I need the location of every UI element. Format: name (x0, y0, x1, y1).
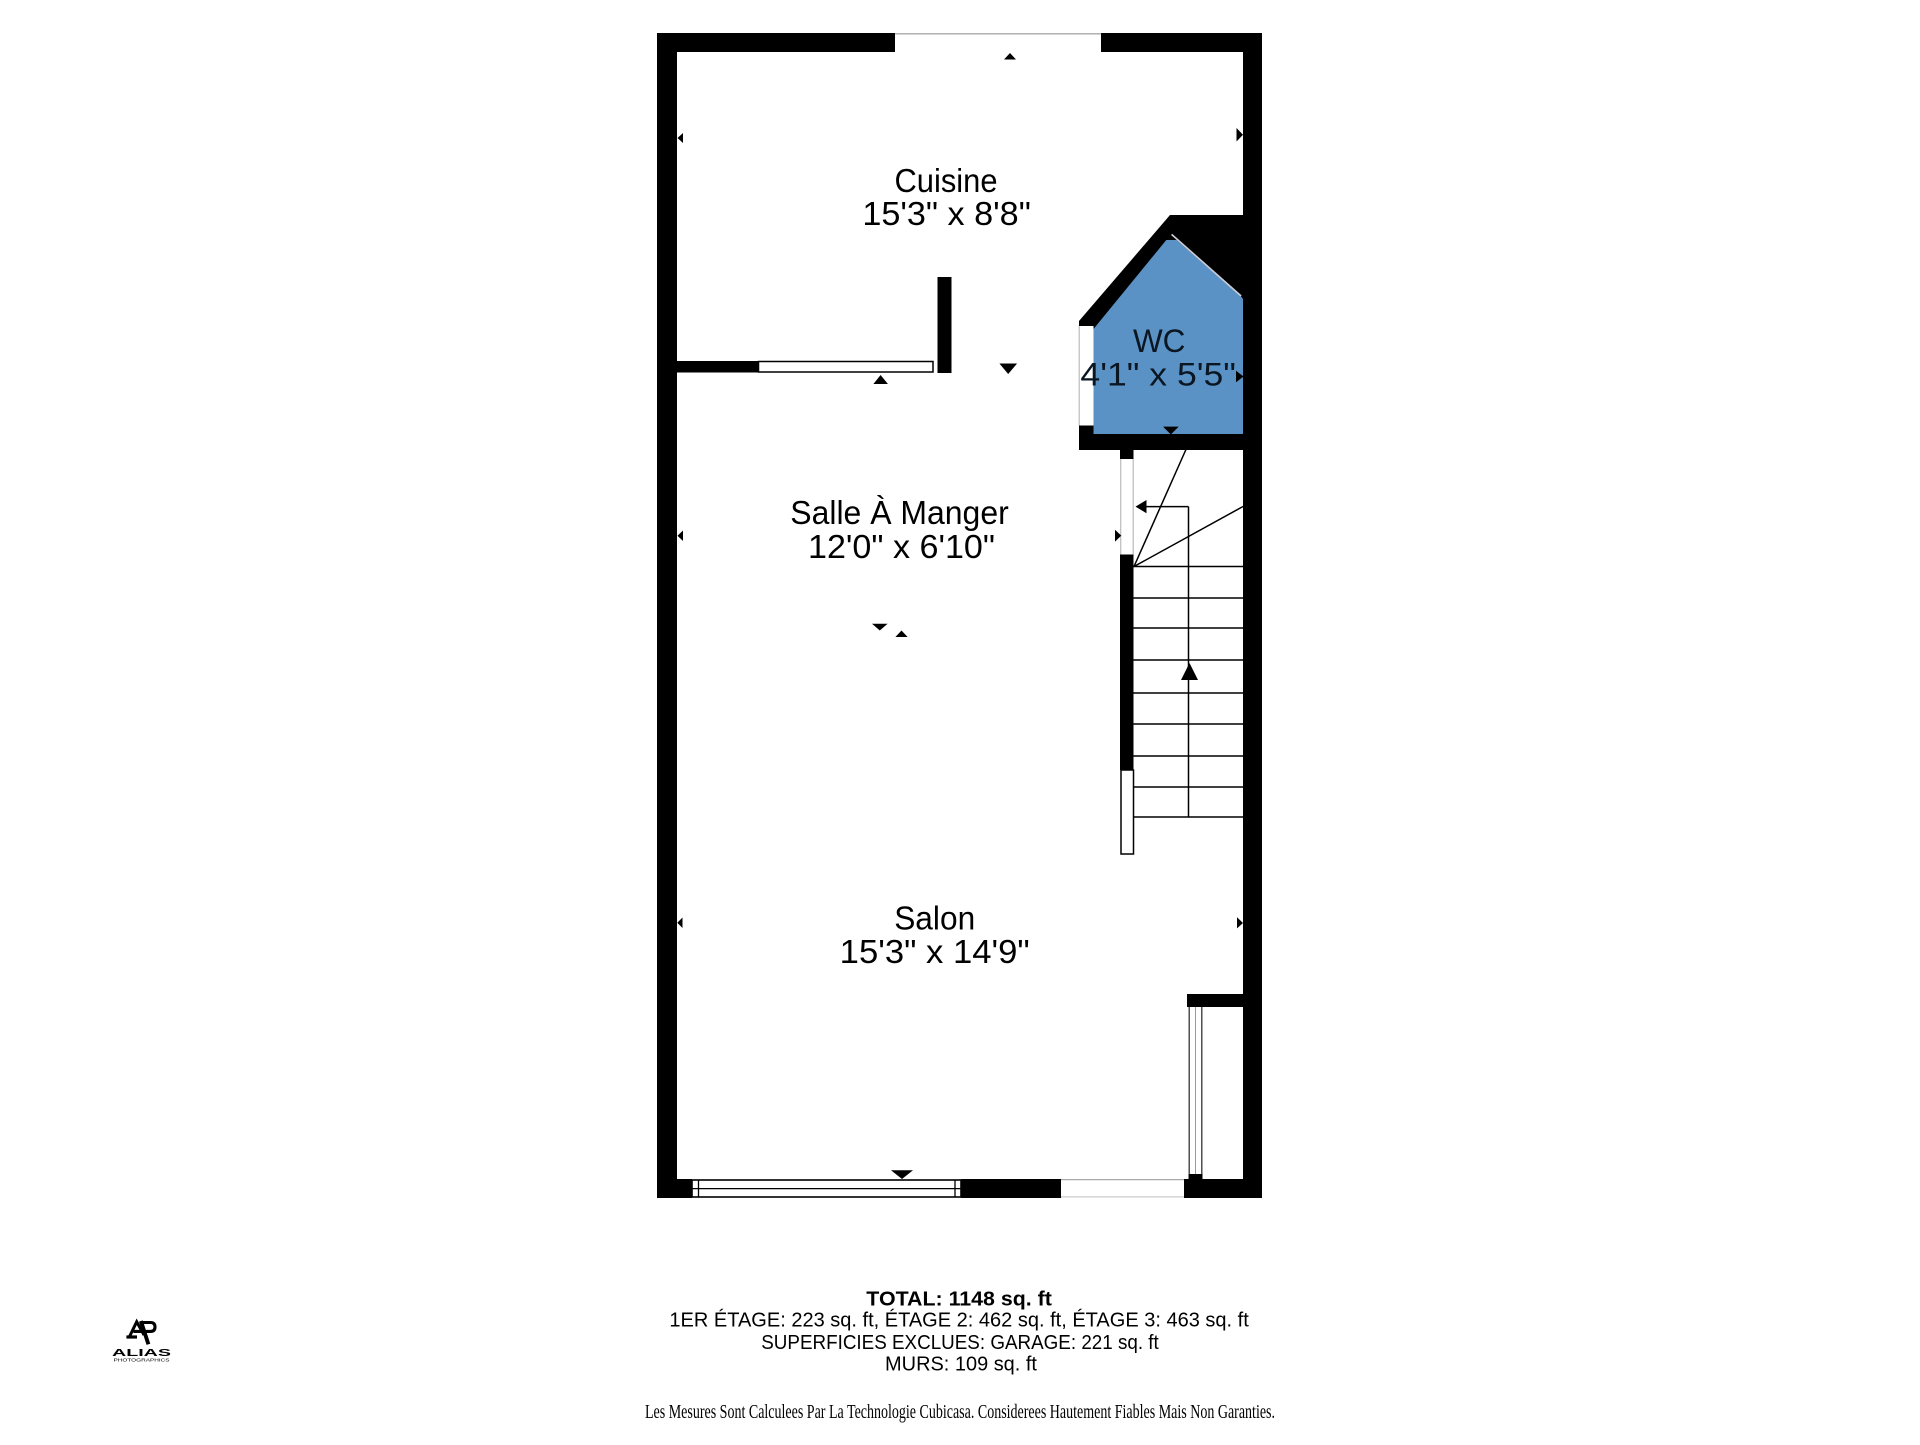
svg-text:WC: WC (1133, 323, 1186, 359)
svg-text:TOTAL: 1148 sq. ft: TOTAL: 1148 sq. ft (866, 1288, 1052, 1311)
svg-text:12'0" x 6'10": 12'0" x 6'10" (808, 528, 995, 565)
svg-text:Les Mesures Sont Calculees Par: Les Mesures Sont Calculees Par La Techno… (645, 1402, 1275, 1423)
svg-text:15'3" x 8'8": 15'3" x 8'8" (862, 195, 1031, 232)
svg-text:SUPERFICIES EXCLUES: GARAGE: 2: SUPERFICIES EXCLUES: GARAGE: 221 sq. ft (761, 1331, 1159, 1354)
svg-text:15'3" x 14'9": 15'3" x 14'9" (840, 933, 1030, 970)
svg-text:Salon: Salon (894, 899, 975, 936)
svg-text:Salle À Manger: Salle À Manger (790, 494, 1009, 531)
svg-text:MURS: 109 sq. ft: MURS: 109 sq. ft (885, 1353, 1037, 1376)
svg-text:1ER ÉTAGE: 223 sq. ft, ÉTAGE 2: 1ER ÉTAGE: 223 sq. ft, ÉTAGE 2: 462 sq. … (669, 1308, 1249, 1331)
svg-text:Cuisine: Cuisine (895, 162, 998, 199)
svg-text:4'1" x 5'5": 4'1" x 5'5" (1080, 357, 1236, 393)
svg-text:PHOTOGRAPHICS: PHOTOGRAPHICS (114, 1357, 170, 1362)
